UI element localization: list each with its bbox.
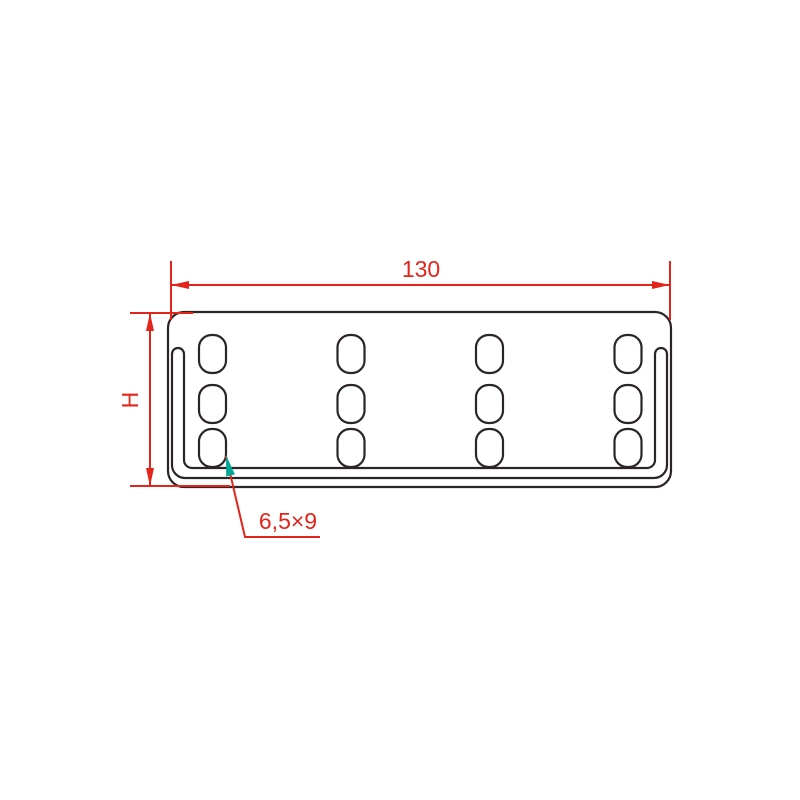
plate-outer-outline	[168, 312, 671, 487]
slot-hole	[476, 335, 503, 373]
height-dimension-group	[130, 313, 230, 486]
fold-edge-contour	[172, 348, 667, 478]
callout-arrowhead	[226, 455, 235, 477]
slot-hole	[338, 335, 365, 373]
width-dimension-arrow	[171, 281, 189, 289]
slot-hole	[338, 385, 365, 423]
height-dimension-arrow	[146, 313, 154, 331]
slot-hole	[199, 385, 226, 423]
plate-outline-group	[168, 312, 671, 487]
flat-connector-technical-drawing: 130 H 6,5×9	[0, 0, 800, 800]
height-dimension-arrow	[146, 468, 154, 486]
slot-hole	[199, 429, 226, 467]
slot-hole	[199, 335, 226, 373]
drawing-canvas: 130 H 6,5×9	[0, 0, 800, 800]
slot-hole	[338, 429, 365, 467]
slot-hole	[476, 385, 503, 423]
slot-hole	[476, 429, 503, 467]
width-dimension-arrow	[652, 281, 670, 289]
slot-hole	[615, 335, 642, 373]
height-dimension-label: H	[117, 392, 143, 409]
slot-hole	[615, 385, 642, 423]
fold-edge-contour-group	[172, 348, 667, 478]
slot-hole	[615, 429, 642, 467]
slot-size-callout-label: 6,5×9	[259, 508, 317, 534]
width-dimension-label: 130	[402, 256, 440, 282]
slot-holes-group	[199, 335, 642, 467]
